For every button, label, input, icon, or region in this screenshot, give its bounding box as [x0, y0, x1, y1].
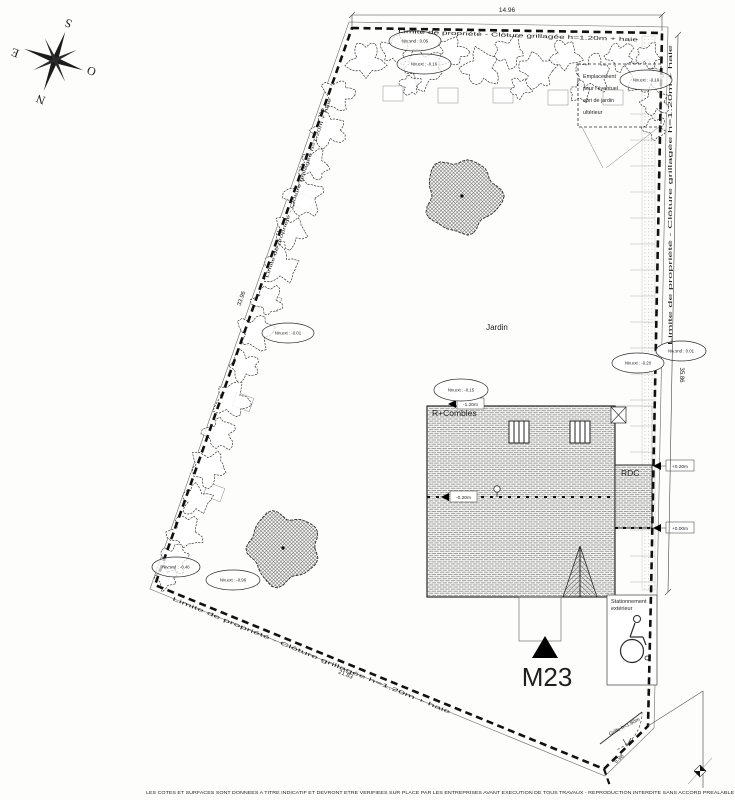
hedge-tree: [213, 382, 252, 417]
dimension-gate-value: 5.98: [613, 753, 625, 765]
svg-text:Niv.ext : -0.96: Niv.ext : -0.96: [220, 578, 247, 583]
dimension-left-value: 33.96: [237, 290, 248, 307]
site-plan-drawing: S N O E: [0, 0, 735, 800]
garden-tree: [426, 160, 504, 235]
boundary-label-right: Limite de propriété - Clôture grillagée …: [668, 45, 674, 345]
level-badge: Niv.snd : -0.46: [152, 557, 200, 577]
footer-disclaimer: LES COTES ET SURFACES SONT DONNEES A TIT…: [146, 790, 734, 795]
rdc-level-text: +0.20m: [672, 464, 688, 470]
svg-text:Niv.ext : -0.20: Niv.ext : -0.20: [625, 361, 652, 366]
svg-text:Niv.ext : -0.01: Niv.ext : -0.01: [275, 331, 302, 336]
shed-note-line1: Emplacement: [583, 74, 616, 80]
parking-label-line2: extérieur: [611, 606, 633, 612]
dimension-top-value: 14.96: [499, 7, 516, 14]
svg-text:Niv.ext : -0.15: Niv.ext : -0.15: [448, 388, 475, 393]
section-level-text: -0.20m: [456, 495, 471, 501]
compass-needle-diag2: [33, 38, 77, 82]
site-plan-page: S N O E: [0, 0, 735, 800]
chimney-box: [611, 407, 626, 423]
garden-gate: Grille h=1.60m: [600, 712, 642, 750]
roof-window: [509, 421, 529, 443]
hedge-tree: [166, 516, 203, 549]
compass-label-south: S: [63, 16, 74, 31]
compass-label-west: O: [85, 63, 98, 79]
shed-note-line3: abri de jardin: [583, 98, 614, 104]
marker-label: M23: [522, 662, 573, 692]
dimension-top: 14.96: [349, 7, 665, 31]
compass-label-east: E: [9, 45, 21, 61]
project-marker: M23: [522, 636, 573, 692]
hedge-tree: [345, 43, 387, 78]
level-badge: Niv.ext : -0.20: [612, 353, 664, 373]
level-badge: Niv.snd : 0.01: [656, 341, 706, 361]
door-symbol: [494, 486, 500, 492]
level-badge: Niv.ext : -0.10: [620, 70, 672, 90]
hedge-tree: [201, 417, 236, 450]
parking-label-line1: Stationnement: [611, 599, 647, 605]
garden-label: Jardin: [486, 323, 508, 332]
rdc-label: RDC: [621, 468, 639, 478]
tree-trunk-dot: [281, 546, 284, 549]
neighbour-parcel-lines: [648, 691, 703, 788]
level-arrow-exterior: +0.00m: [653, 522, 694, 533]
roof-label: R+Combles: [432, 408, 477, 418]
exterior-level-text: +0.00m: [672, 526, 688, 532]
dimension-right-value: 35.86: [678, 367, 684, 383]
survey-marker-icon: [688, 758, 712, 784]
boundary-continuation: [604, 769, 610, 786]
svg-text:Niv.snd : -0.46: Niv.snd : -0.46: [162, 565, 190, 570]
hedge-tree: [229, 349, 259, 384]
shed-note-line2: pour l'éventuel: [583, 86, 618, 92]
gate-label: Grille h=1.60m: [608, 717, 641, 738]
roof-window: [570, 421, 590, 443]
tree-trunk-dot: [460, 194, 463, 197]
hedge-tree: [192, 451, 226, 489]
level-badge: Niv.ext : -0.15: [434, 379, 488, 401]
svg-text:Niv.ext : -0.10: Niv.ext : -0.10: [633, 78, 660, 83]
level-badge: Niv.ext : -0.96: [206, 570, 260, 590]
boundary-label-bottom: Limite de propriété - Clôture grillagée …: [171, 596, 451, 715]
porch-outline: [519, 597, 561, 641]
triangle-marker-icon: [532, 636, 558, 658]
svg-text:Niv.snd : 0.06: Niv.snd : 0.06: [402, 39, 429, 44]
level-badge: Niv.ext : -0.01: [262, 323, 314, 343]
shed-note-line4: ultérieur: [583, 110, 603, 116]
level-badge: Niv.ext : -0.16: [397, 54, 451, 74]
compass-label-north: N: [34, 91, 47, 107]
compass-rose-icon: S N O E: [0, 2, 111, 121]
svg-text:Niv.ext : -0.16: Niv.ext : -0.16: [411, 62, 438, 67]
